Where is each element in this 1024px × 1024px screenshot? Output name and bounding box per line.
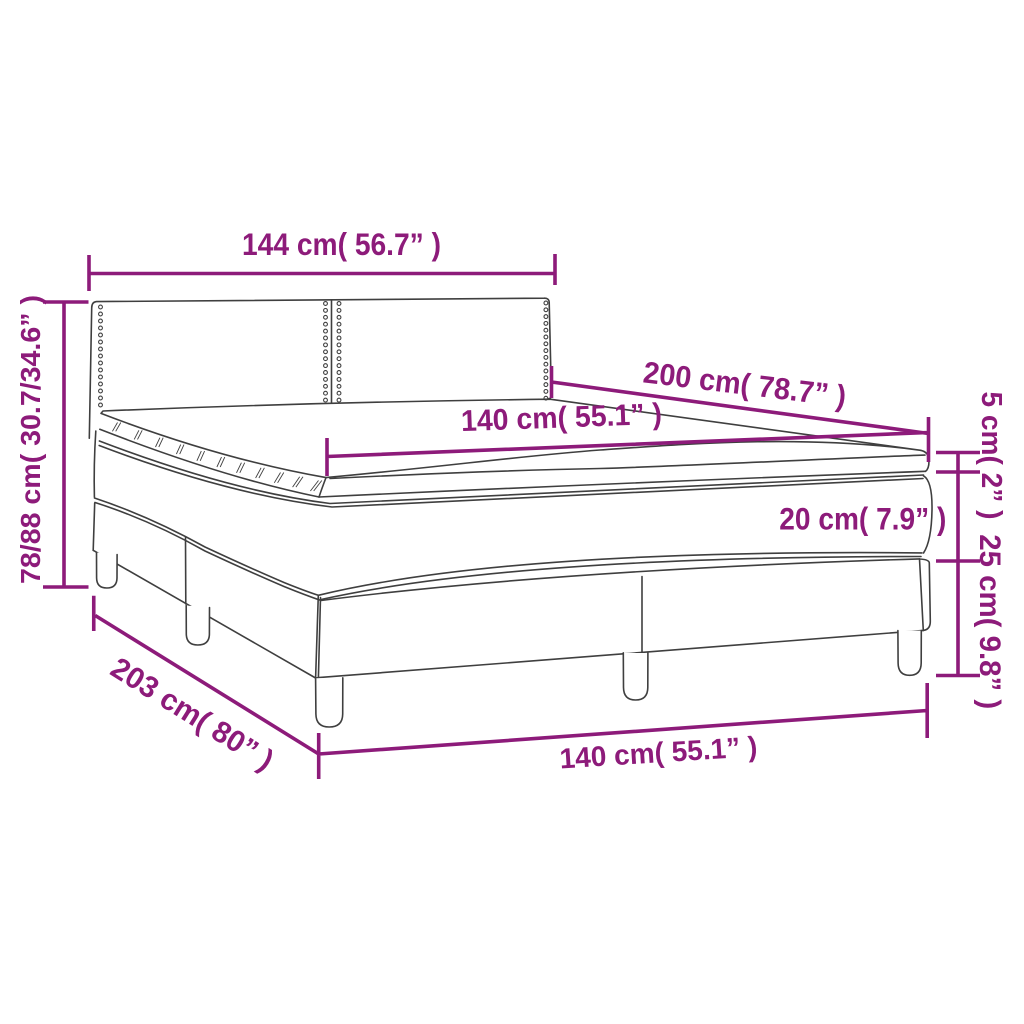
svg-text:78/88 cm( 30.7/34.6” ): 78/88 cm( 30.7/34.6” ) xyxy=(15,295,46,584)
svg-text:5 cm( 2” ): 5 cm( 2” ) xyxy=(975,392,1007,520)
svg-text:20 cm( 7.9” ): 20 cm( 7.9” ) xyxy=(779,501,946,537)
svg-text:144 cm( 56.7” ): 144 cm( 56.7” ) xyxy=(242,226,441,262)
svg-text:25 cm( 9.8” ): 25 cm( 9.8” ) xyxy=(973,534,1006,709)
